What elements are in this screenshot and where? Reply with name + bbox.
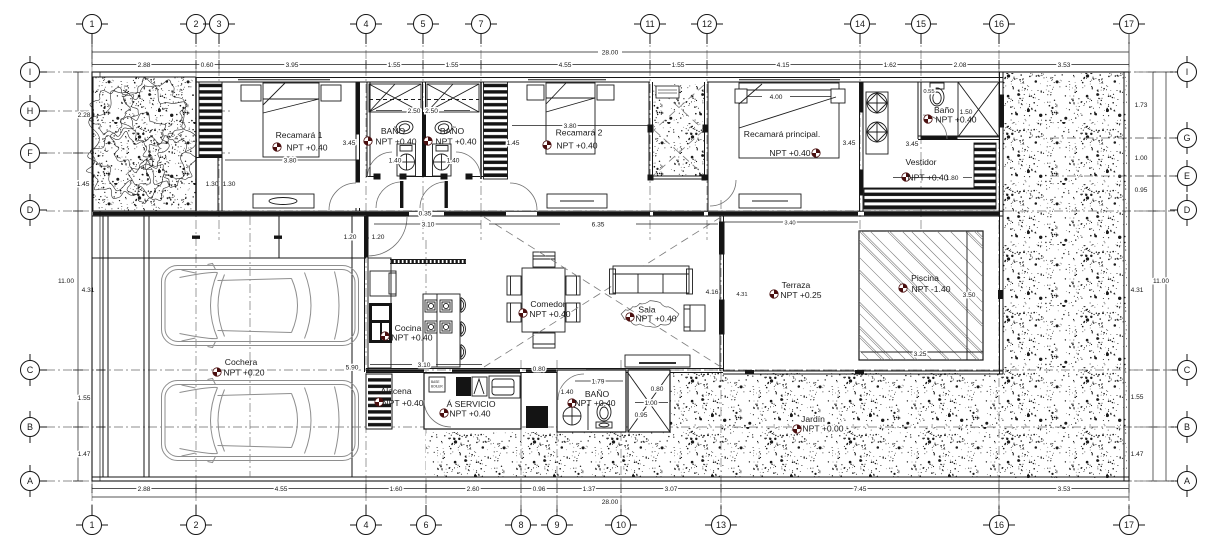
svg-text:3.80: 3.80 [284,158,297,165]
svg-text:1.00: 1.00 [1135,155,1148,162]
svg-text:0.95: 0.95 [635,412,648,419]
svg-text:NPT +0.40: NPT +0.40 [529,309,570,319]
svg-text:NPT +0.40: NPT +0.40 [449,409,490,419]
svg-text:13: 13 [716,520,726,530]
svg-text:Recamará 2: Recamará 2 [556,128,603,138]
svg-text:17: 17 [1124,19,1134,29]
svg-text:A: A [27,476,33,486]
svg-text:Recamará principal.: Recamará principal. [744,129,820,139]
svg-text:1.40: 1.40 [447,158,460,165]
svg-text:1.62: 1.62 [884,62,897,69]
svg-text:6.35: 6.35 [592,222,605,229]
svg-text:4: 4 [363,19,368,29]
svg-text:5: 5 [420,19,425,29]
svg-text:3.40: 3.40 [784,221,795,227]
svg-text:2.60: 2.60 [467,486,480,493]
svg-text:28.00: 28.00 [602,50,619,57]
svg-text:3.50: 3.50 [963,292,976,299]
svg-text:4: 4 [363,520,368,530]
svg-text:B: B [27,422,33,432]
svg-text:I: I [29,67,32,77]
svg-text:1.37: 1.37 [583,486,596,493]
svg-text:4.15: 4.15 [777,62,790,69]
svg-text:14: 14 [855,19,865,29]
svg-text:NPT +0.40: NPT +0.40 [935,115,976,125]
svg-text:E: E [1184,171,1190,181]
svg-text:1.55: 1.55 [78,395,91,402]
svg-text:NPT +0.20: NPT +0.20 [223,368,264,378]
svg-text:1.47: 1.47 [78,451,91,458]
svg-text:3.45: 3.45 [906,141,919,148]
svg-text:4.31: 4.31 [736,292,747,298]
svg-text:1.30: 1.30 [206,181,219,188]
svg-text:0.55: 0.55 [923,89,934,95]
svg-text:BOILER: BOILER [431,385,443,389]
svg-text:2.88: 2.88 [138,62,151,69]
svg-text:4.16: 4.16 [706,289,719,296]
svg-text:H: H [27,106,34,116]
svg-text:NPT +0.40: NPT +0.40 [286,143,327,153]
svg-text:1.45: 1.45 [77,181,90,188]
svg-text:1.55: 1.55 [446,62,459,69]
svg-text:2.08: 2.08 [954,62,967,69]
svg-text:16: 16 [994,19,1004,29]
svg-text:NPT +0.40: NPT +0.40 [574,398,615,408]
svg-text:11.00: 11.00 [58,278,74,285]
svg-text:9: 9 [554,520,559,530]
svg-text:1.60: 1.60 [390,486,403,493]
svg-text:7: 7 [478,19,483,29]
svg-text:2.50: 2.50 [425,108,438,115]
svg-text:Cocina: Cocina [395,323,422,333]
svg-text:0.80: 0.80 [533,366,546,373]
svg-text:1.79: 1.79 [592,379,605,386]
svg-text:1.30: 1.30 [223,181,236,188]
svg-text:0.95: 0.95 [1135,187,1148,194]
svg-text:3.53: 3.53 [1058,62,1071,69]
svg-text:6: 6 [423,520,428,530]
svg-text:0.60: 0.60 [201,62,214,69]
svg-text:2: 2 [193,19,198,29]
svg-text:Baño: Baño [934,105,954,115]
svg-text:NPT +0.40: NPT +0.40 [635,314,676,324]
svg-text:17: 17 [1124,520,1134,530]
svg-text:Cochera: Cochera [225,357,258,367]
svg-text:3.07: 3.07 [665,486,678,493]
svg-text:1.55: 1.55 [1131,394,1144,401]
svg-text:11.00: 11.00 [1153,278,1169,285]
svg-text:10: 10 [616,520,626,530]
svg-text:3.45: 3.45 [843,140,856,147]
svg-text:12: 12 [702,19,712,29]
svg-text:Piscina: Piscina [911,273,939,283]
svg-text:C: C [1184,365,1191,375]
svg-text:3.10: 3.10 [418,362,431,369]
svg-text:A: A [1184,476,1190,486]
svg-text:1: 1 [89,520,94,530]
svg-text:1.40: 1.40 [389,158,402,165]
svg-text:3.25: 3.25 [914,351,927,358]
svg-text:3.10: 3.10 [422,222,435,229]
svg-text:NPT +0.40: NPT +0.40 [391,333,432,343]
svg-text:Vestidor: Vestidor [905,157,936,167]
svg-text:1.40: 1.40 [561,389,574,396]
svg-text:3: 3 [216,19,221,29]
svg-text:0.35: 0.35 [419,211,432,218]
svg-text:NPT -1.40: NPT -1.40 [911,284,950,294]
svg-text:15: 15 [916,19,926,29]
svg-text:3.45: 3.45 [343,140,356,147]
svg-text:1.73: 1.73 [1135,102,1148,109]
svg-text:1.45: 1.45 [507,140,520,147]
svg-text:D: D [27,205,34,215]
svg-text:Alacena: Alacena [380,386,411,396]
svg-text:D: D [1184,205,1191,215]
svg-text:1.47: 1.47 [1131,451,1144,458]
svg-text:16: 16 [994,520,1004,530]
svg-text:NPT +0.40: NPT +0.40 [556,141,597,151]
svg-text:BAÑO: BAÑO [381,126,406,136]
svg-text:28.00: 28.00 [602,499,619,506]
svg-text:4.55: 4.55 [275,486,288,493]
svg-text:1: 1 [89,19,94,29]
svg-text:NPT +0.00: NPT +0.00 [802,424,843,434]
svg-text:3.53: 3.53 [1058,486,1071,493]
svg-text:Terraza: Terraza [782,280,811,290]
svg-text:NPT +0.40: NPT +0.40 [435,137,476,147]
svg-text:NPT +0.40: NPT +0.40 [375,137,416,147]
svg-text:3.95: 3.95 [286,62,299,69]
svg-text:BASE: BASE [431,380,440,384]
svg-text:NPT +0.40: NPT +0.40 [382,398,423,408]
svg-text:1.00: 1.00 [645,400,658,407]
svg-text:5.90: 5.90 [346,365,359,372]
svg-text:C: C [27,365,34,375]
svg-text:4.31: 4.31 [1131,287,1144,294]
svg-text:B: B [1184,422,1190,432]
svg-text:NPT +0.25: NPT +0.25 [780,290,821,300]
svg-text:11: 11 [645,19,654,29]
svg-text:8: 8 [518,520,523,530]
svg-text:4.55: 4.55 [559,62,572,69]
svg-text:2.50: 2.50 [408,108,421,115]
svg-text:I: I [1186,67,1189,77]
svg-text:0.96: 0.96 [533,486,546,493]
svg-text:1.55: 1.55 [388,62,401,69]
svg-text:Recamará 1: Recamará 1 [276,130,323,140]
svg-text:1.20: 1.20 [344,234,357,241]
svg-text:NPT +0.40: NPT +0.40 [907,173,948,183]
svg-text:7.45: 7.45 [854,486,867,493]
svg-text:0.80: 0.80 [651,386,664,393]
svg-text:NPT +0.40: NPT +0.40 [769,148,810,158]
svg-text:4.31: 4.31 [82,287,95,294]
svg-text:BAÑO: BAÑO [440,126,465,136]
svg-text:2: 2 [193,520,198,530]
svg-text:F: F [27,148,33,158]
svg-text:Jardín: Jardín [801,414,825,424]
svg-text:2.28: 2.28 [78,112,91,119]
svg-text:G: G [1183,133,1190,143]
svg-text:4.00: 4.00 [770,94,783,101]
svg-text:2.88: 2.88 [138,486,151,493]
svg-text:Comedor: Comedor [530,299,565,309]
svg-text:1.20: 1.20 [372,234,385,241]
svg-text:Á SERVICIO: Á SERVICIO [446,399,495,409]
svg-text:1.55: 1.55 [672,62,685,69]
